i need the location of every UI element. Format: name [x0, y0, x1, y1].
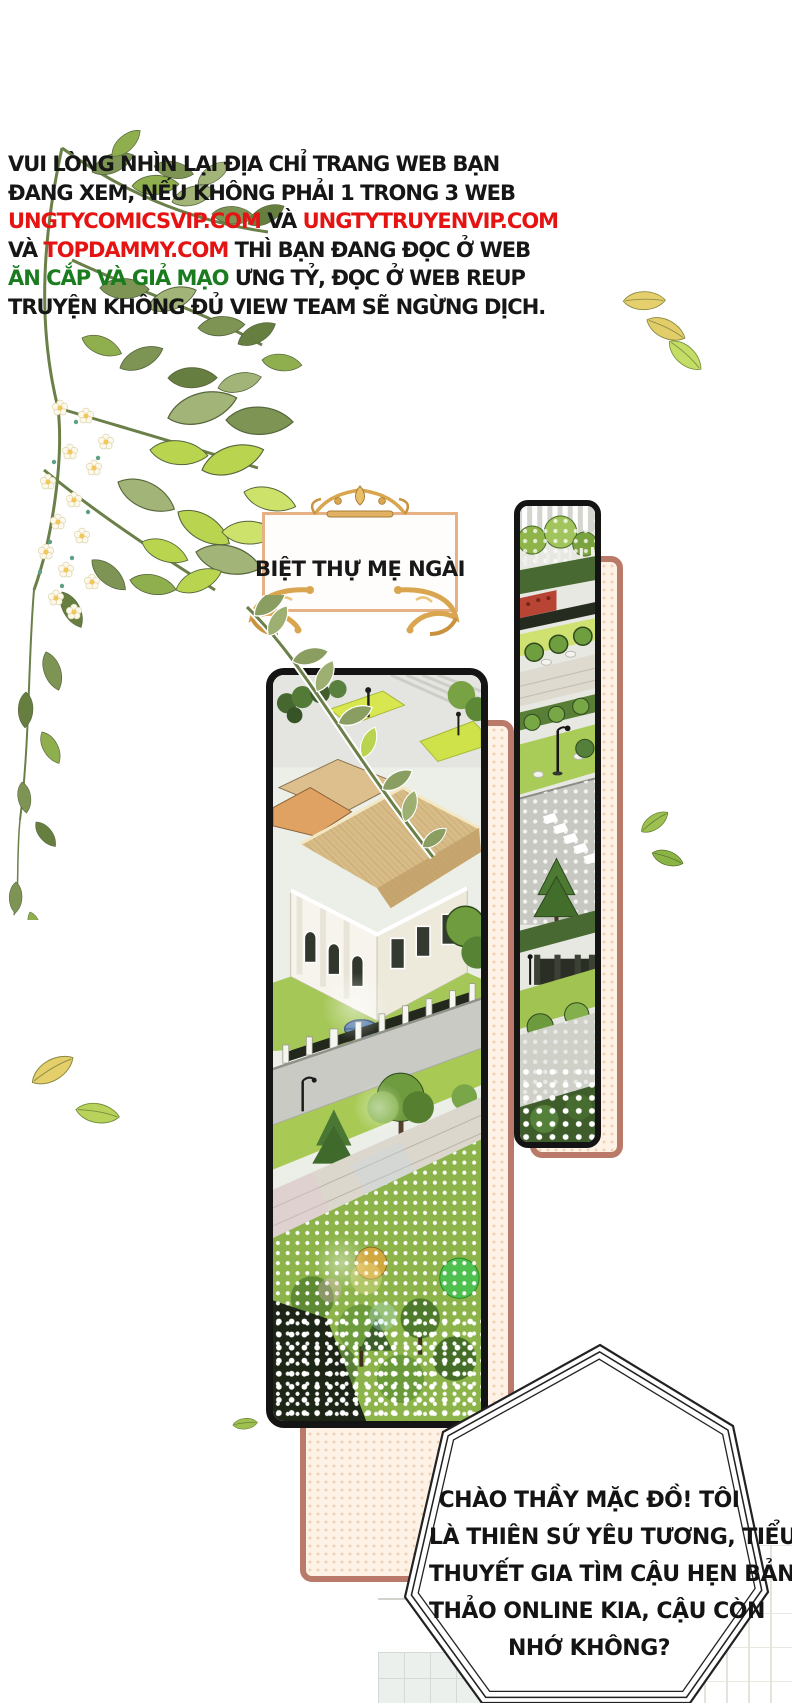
warning-green-text: ĂN CẮP VÀ GIẢ MẠO: [8, 266, 229, 290]
bubble-line-2: LÀ THIÊN SỨ YÊU TƯƠNG, TIỂU: [429, 1519, 749, 1556]
warning-text-5: ƯNG TỶ, ĐỌC Ở WEB REUP: [229, 266, 525, 290]
warning-url-3: TOPDAMMY.COM: [43, 238, 228, 262]
bubble-line-3: THUYẾT GIA TÌM CẬU HẸN BẢN: [429, 1556, 749, 1593]
falling-leaf-icon: [231, 1414, 260, 1435]
speech-bubble-text: CHÀO THẦY MẶC ĐỒ! TÔI LÀ THIÊN SỨ YÊU TƯ…: [429, 1482, 749, 1667]
warning-text-1: VUI LÒNG NHÌN LẠI ĐỊA CHỈ TRANG WEB BẠN: [8, 152, 499, 176]
warning-text-3: VÀ: [261, 209, 303, 233]
warning-url-2: UNGTYTRUYENVIP.COM: [303, 209, 558, 233]
bubble-line-4: THẢO ONLINE KIA, CẬU CÒN: [429, 1593, 749, 1630]
location-title: BIỆT THỰ MẸ NGÀI: [255, 543, 465, 581]
bubble-line-5: NHỚ KHÔNG?: [429, 1630, 749, 1667]
warning-url-1: UNGTYCOMICSVIP.COM: [8, 209, 261, 233]
falling-leaf-icon: [70, 1091, 124, 1137]
comic-panel-street: [514, 500, 601, 1148]
bubble-line-1: CHÀO THẦY MẶC ĐỒ! TÔI: [429, 1482, 749, 1519]
comic-page: VUI LÒNG NHÌN LẠI ĐỊA CHỈ TRANG WEB BẠN …: [0, 0, 792, 1703]
falling-leaf-icon: [635, 807, 674, 839]
warning-line: ĐANG XEM, NẾU KHÔNG PHẢI 1 TRONG 3 WEB: [8, 179, 558, 208]
warning-line: UNGTYCOMICSVIP.COM VÀ UNGTYTRUYENVIP.COM: [8, 207, 558, 236]
falling-leaf-icon: [647, 840, 687, 878]
warning-line: TRUYỆN KHÔNG ĐỦ VIEW TEAM SẼ NGỪNG DỊCH.: [8, 293, 558, 322]
warning-text-6: TRUYỆN KHÔNG ĐỦ VIEW TEAM SẼ NGỪNG DỊCH.: [8, 295, 545, 319]
crown-ornament-icon: [307, 484, 413, 520]
anti-piracy-warning: VUI LÒNG NHÌN LẠI ĐỊA CHỈ TRANG WEB BẠN …: [8, 150, 558, 321]
warning-line: ĂN CẮP VÀ GIẢ MẠO ƯNG TỶ, ĐỌC Ở WEB REUP: [8, 264, 558, 293]
warning-text-4a: VÀ: [8, 238, 43, 262]
warning-line: VÀ TOPDAMMY.COM THÌ BẠN ĐANG ĐỌC Ở WEB: [8, 236, 558, 265]
falling-leaf-icon: [25, 1050, 81, 1093]
warning-line: VUI LÒNG NHÌN LẠI ĐỊA CHỈ TRANG WEB BẠN: [8, 150, 558, 179]
street-scene-art: [520, 506, 595, 1142]
vine-branch-overlay-icon: [235, 595, 450, 885]
warning-text-4b: THÌ BẠN ĐANG ĐỌC Ở WEB: [228, 238, 530, 262]
warning-text-2: ĐANG XEM, NẾU KHÔNG PHẢI 1 TRONG 3 WEB: [8, 181, 515, 205]
